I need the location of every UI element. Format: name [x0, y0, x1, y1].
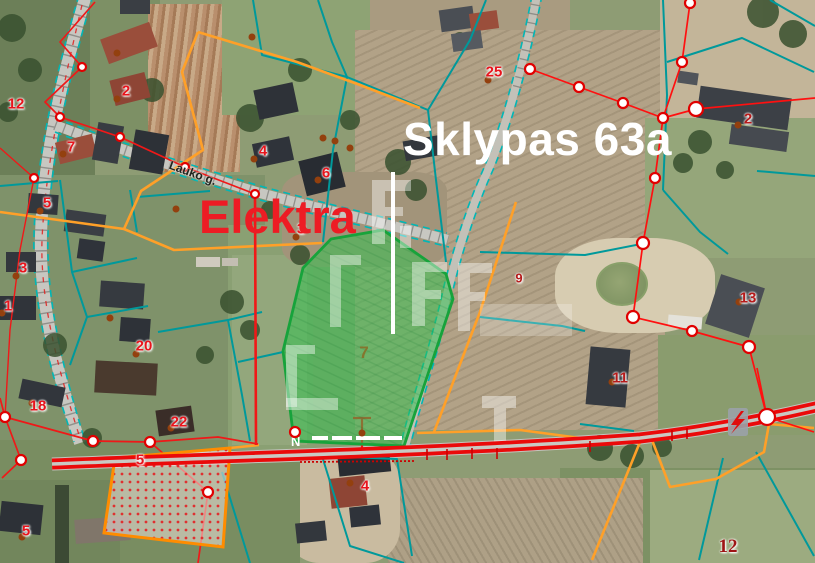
parcel-number: 2: [122, 83, 130, 100]
parcel-number: 22: [171, 414, 188, 431]
survey-node: [618, 98, 628, 108]
boundary-point: [347, 480, 354, 487]
parcel-number: 12: [8, 96, 25, 113]
survey-node: [627, 311, 639, 323]
parcel-number: 9: [515, 271, 522, 286]
parcel-number: 18: [30, 398, 47, 415]
boundary-point: [249, 34, 256, 41]
white-bar-marker: [391, 172, 395, 334]
boundary-point: [114, 50, 121, 57]
boundary-point: [735, 122, 742, 129]
survey-node: [525, 64, 535, 74]
survey-node: [650, 173, 660, 183]
boundary-point: [347, 145, 354, 152]
annotation-elektra: Elektra: [199, 189, 356, 244]
survey-node: [637, 237, 649, 249]
survey-node: [116, 133, 124, 141]
boundary-point: [315, 177, 322, 184]
power-line: [530, 3, 815, 432]
transformer-icon: [728, 408, 748, 436]
boundary-point: [320, 135, 327, 142]
survey-node: [78, 63, 86, 71]
survey-node: [16, 455, 26, 465]
boundary-point: [114, 96, 121, 103]
parcel-number: 20: [136, 338, 153, 355]
parcel-number: 25: [486, 64, 503, 81]
survey-node: [687, 326, 697, 336]
parcel-number: 2: [744, 111, 752, 128]
parcel-number: 3: [19, 260, 27, 277]
boundary-point: [332, 138, 339, 145]
parcel-number: 7: [359, 343, 368, 363]
survey-node: [743, 341, 755, 353]
parcel-number: 5: [136, 452, 144, 469]
parcel-number: 5: [43, 195, 51, 212]
survey-node: [689, 102, 703, 116]
parcel-number: 5: [22, 523, 30, 540]
boundary-point: [359, 430, 366, 437]
survey-node: [56, 113, 64, 121]
survey-node: [30, 174, 38, 182]
survey-node: [88, 436, 98, 446]
parcel-number: 11: [612, 370, 628, 387]
parcel-number: 13: [740, 290, 757, 307]
survey-node: [677, 57, 687, 67]
survey-node: [145, 437, 155, 447]
survey-node: [685, 0, 695, 8]
map-viewport[interactable]: N: [0, 0, 815, 563]
parcel-number: 1: [4, 298, 12, 315]
parcel-number: 12: [719, 536, 738, 558]
survey-node: [203, 487, 213, 497]
survey-node: [0, 412, 10, 422]
survey-node: [574, 82, 584, 92]
survey-node: [759, 409, 775, 425]
parcel-number: 7: [67, 139, 75, 156]
boundary-point: [107, 315, 114, 322]
boundary-point: [173, 206, 180, 213]
parcel-number: 4: [259, 143, 267, 160]
boundary-point: [251, 156, 258, 163]
parcel-number: 6: [322, 165, 330, 182]
boundary-point: [60, 151, 67, 158]
parcel-number: 4: [361, 478, 369, 495]
headline-sklypas: Sklypas 63a: [403, 112, 672, 166]
survey-node: [290, 427, 300, 437]
